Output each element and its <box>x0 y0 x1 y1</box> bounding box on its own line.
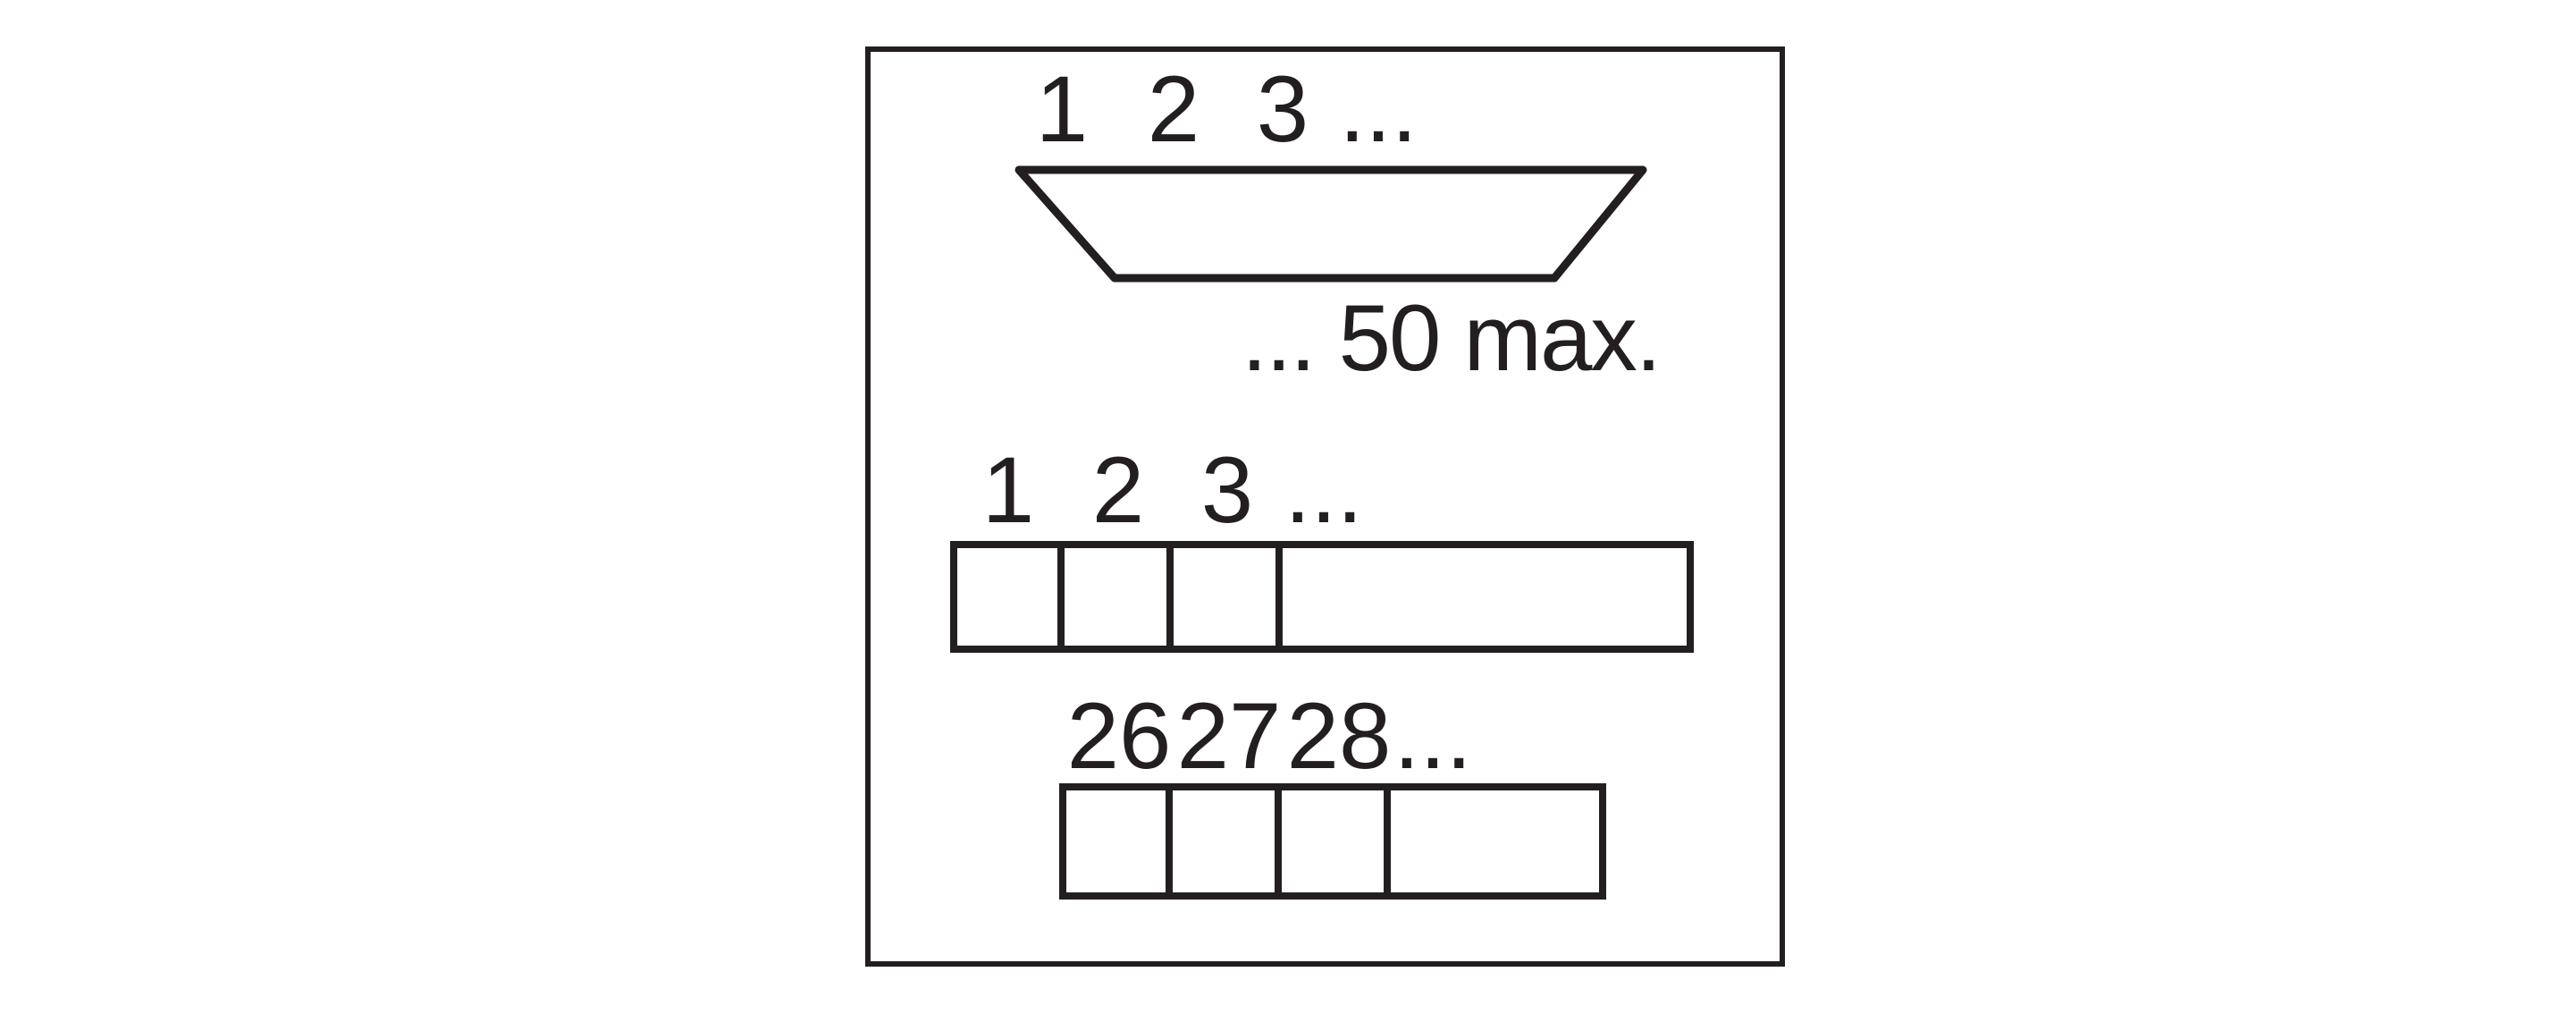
strip-top-cell-divider-3 <box>1275 541 1283 653</box>
connector-pin-label-1: 1 <box>1036 63 1088 156</box>
strip-top-pin-ellipsis: ... <box>1284 444 1363 537</box>
strip-top-pin-label-2: 2 <box>1092 444 1144 537</box>
marker-strip-bottom-bar <box>1059 783 1606 900</box>
strip-bottom-cell-divider-1 <box>1166 783 1173 900</box>
strip-bottom-pin-label-26: 26 <box>1067 689 1172 783</box>
connector-pin-label-2: 2 <box>1148 63 1200 156</box>
strip-top-cell-divider-2 <box>1166 541 1174 653</box>
connector-pin-label-3: 3 <box>1257 63 1309 156</box>
strip-bottom-cell-divider-3 <box>1384 783 1391 900</box>
strip-top-pin-label-3: 3 <box>1201 444 1253 537</box>
strip-bottom-pin-label-28: 28 <box>1287 689 1392 783</box>
strip-top-pin-label-1: 1 <box>982 444 1034 537</box>
dsub-connector-trapezoid <box>1010 161 1654 288</box>
strip-bottom-pin-ellipsis: ... <box>1393 689 1472 783</box>
strip-bottom-cell-divider-2 <box>1275 783 1282 900</box>
strip-bottom-pin-label-27: 27 <box>1177 689 1282 783</box>
diagram-canvas: 1 2 3 ... ... 50 max. 1 2 3 ... 26 27 28… <box>0 0 2576 1014</box>
connector-max-pins-label: ... 50 max. <box>1242 292 1660 385</box>
strip-top-cell-divider-1 <box>1057 541 1065 653</box>
connector-pin-ellipsis: ... <box>1339 63 1418 156</box>
